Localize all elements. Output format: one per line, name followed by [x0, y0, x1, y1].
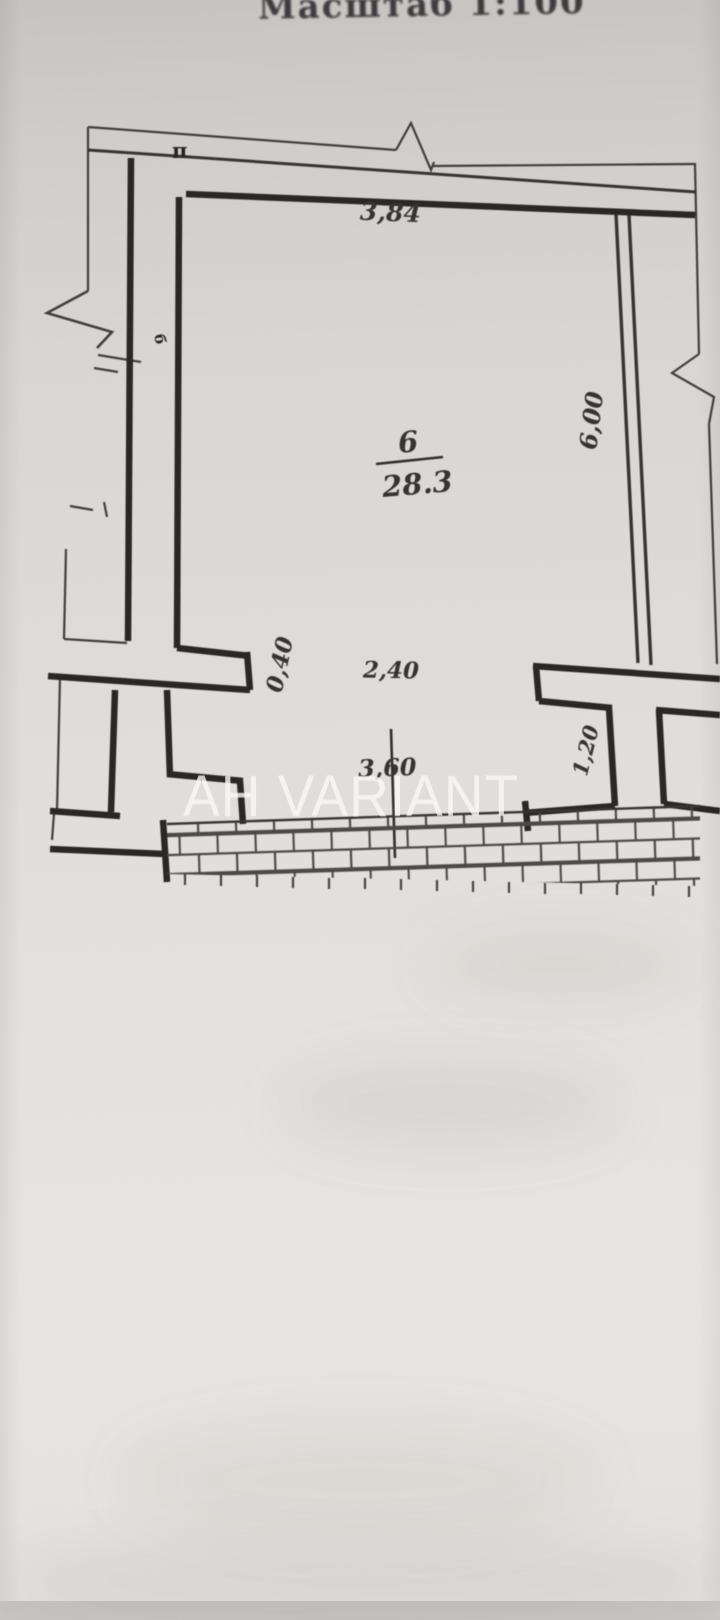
agency-watermark: АН VARIANT — [183, 763, 519, 830]
right-corner-wall — [656, 710, 720, 811]
top-break-icon — [396, 123, 434, 170]
right-outer-line — [695, 164, 717, 664]
right-opening-wall — [533, 666, 720, 708]
room-number: 6 — [397, 424, 420, 460]
room-top-wall — [186, 194, 695, 215]
room-area: 28.3 — [381, 464, 454, 504]
left-wall-outer — [128, 158, 131, 641]
left-wall-inner — [177, 197, 179, 648]
dimension-opening-width: 2,40 — [363, 657, 419, 685]
right-wall-lines — [616, 214, 651, 665]
left-lower-rect — [50, 690, 120, 816]
scanned-floor-plan-photo: Масштаб 1:100 — [0, 0, 720, 1601]
left-break-icon — [47, 291, 112, 348]
top-wall-marker: п — [172, 138, 187, 163]
right-break-icon — [672, 354, 714, 424]
dimension-top-width: 3,84 — [359, 197, 421, 229]
left-opening-wall — [48, 648, 250, 690]
